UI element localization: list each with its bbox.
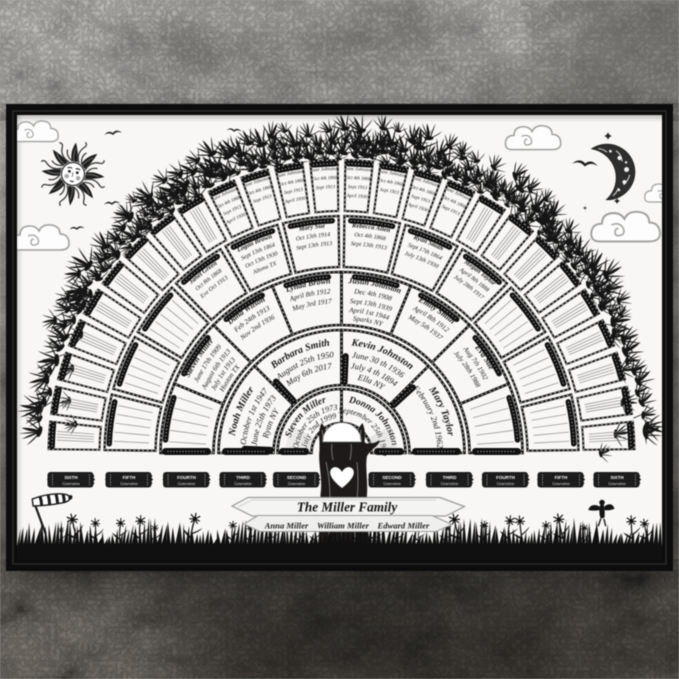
- svg-text:Generation: Generation: [608, 482, 625, 486]
- svg-text:SECOND: SECOND: [287, 475, 307, 480]
- svg-text:Generation: Generation: [441, 482, 458, 486]
- svg-text:THIRD: THIRD: [236, 475, 250, 480]
- svg-text:THIRD: THIRD: [443, 475, 457, 480]
- svg-text:Generation: Generation: [62, 482, 79, 486]
- svg-text:FOURTH: FOURTH: [177, 475, 196, 480]
- svg-text:Anna Miller William Miller: Anna Miller William Miller Edward Miller: [264, 521, 430, 531]
- svg-text:Generation: Generation: [120, 482, 137, 486]
- svg-text:FIFTH: FIFTH: [123, 475, 136, 480]
- svg-text:Generation: Generation: [552, 482, 569, 486]
- svg-text:Generation: Generation: [234, 482, 251, 486]
- svg-text:SECOND: SECOND: [382, 475, 402, 480]
- svg-text:The Miller Family: The Miller Family: [297, 500, 398, 515]
- svg-text:SIXTH: SIXTH: [610, 475, 623, 480]
- svg-text:Generation: Generation: [383, 482, 400, 486]
- svg-text:Generation: Generation: [178, 482, 195, 486]
- svg-text:FOURTH: FOURTH: [496, 475, 515, 480]
- svg-text:SIXTH: SIXTH: [64, 475, 77, 480]
- svg-text:FIFTH: FIFTH: [555, 475, 568, 480]
- svg-text:Generation: Generation: [288, 482, 305, 486]
- svg-text:Generation: Generation: [497, 482, 514, 486]
